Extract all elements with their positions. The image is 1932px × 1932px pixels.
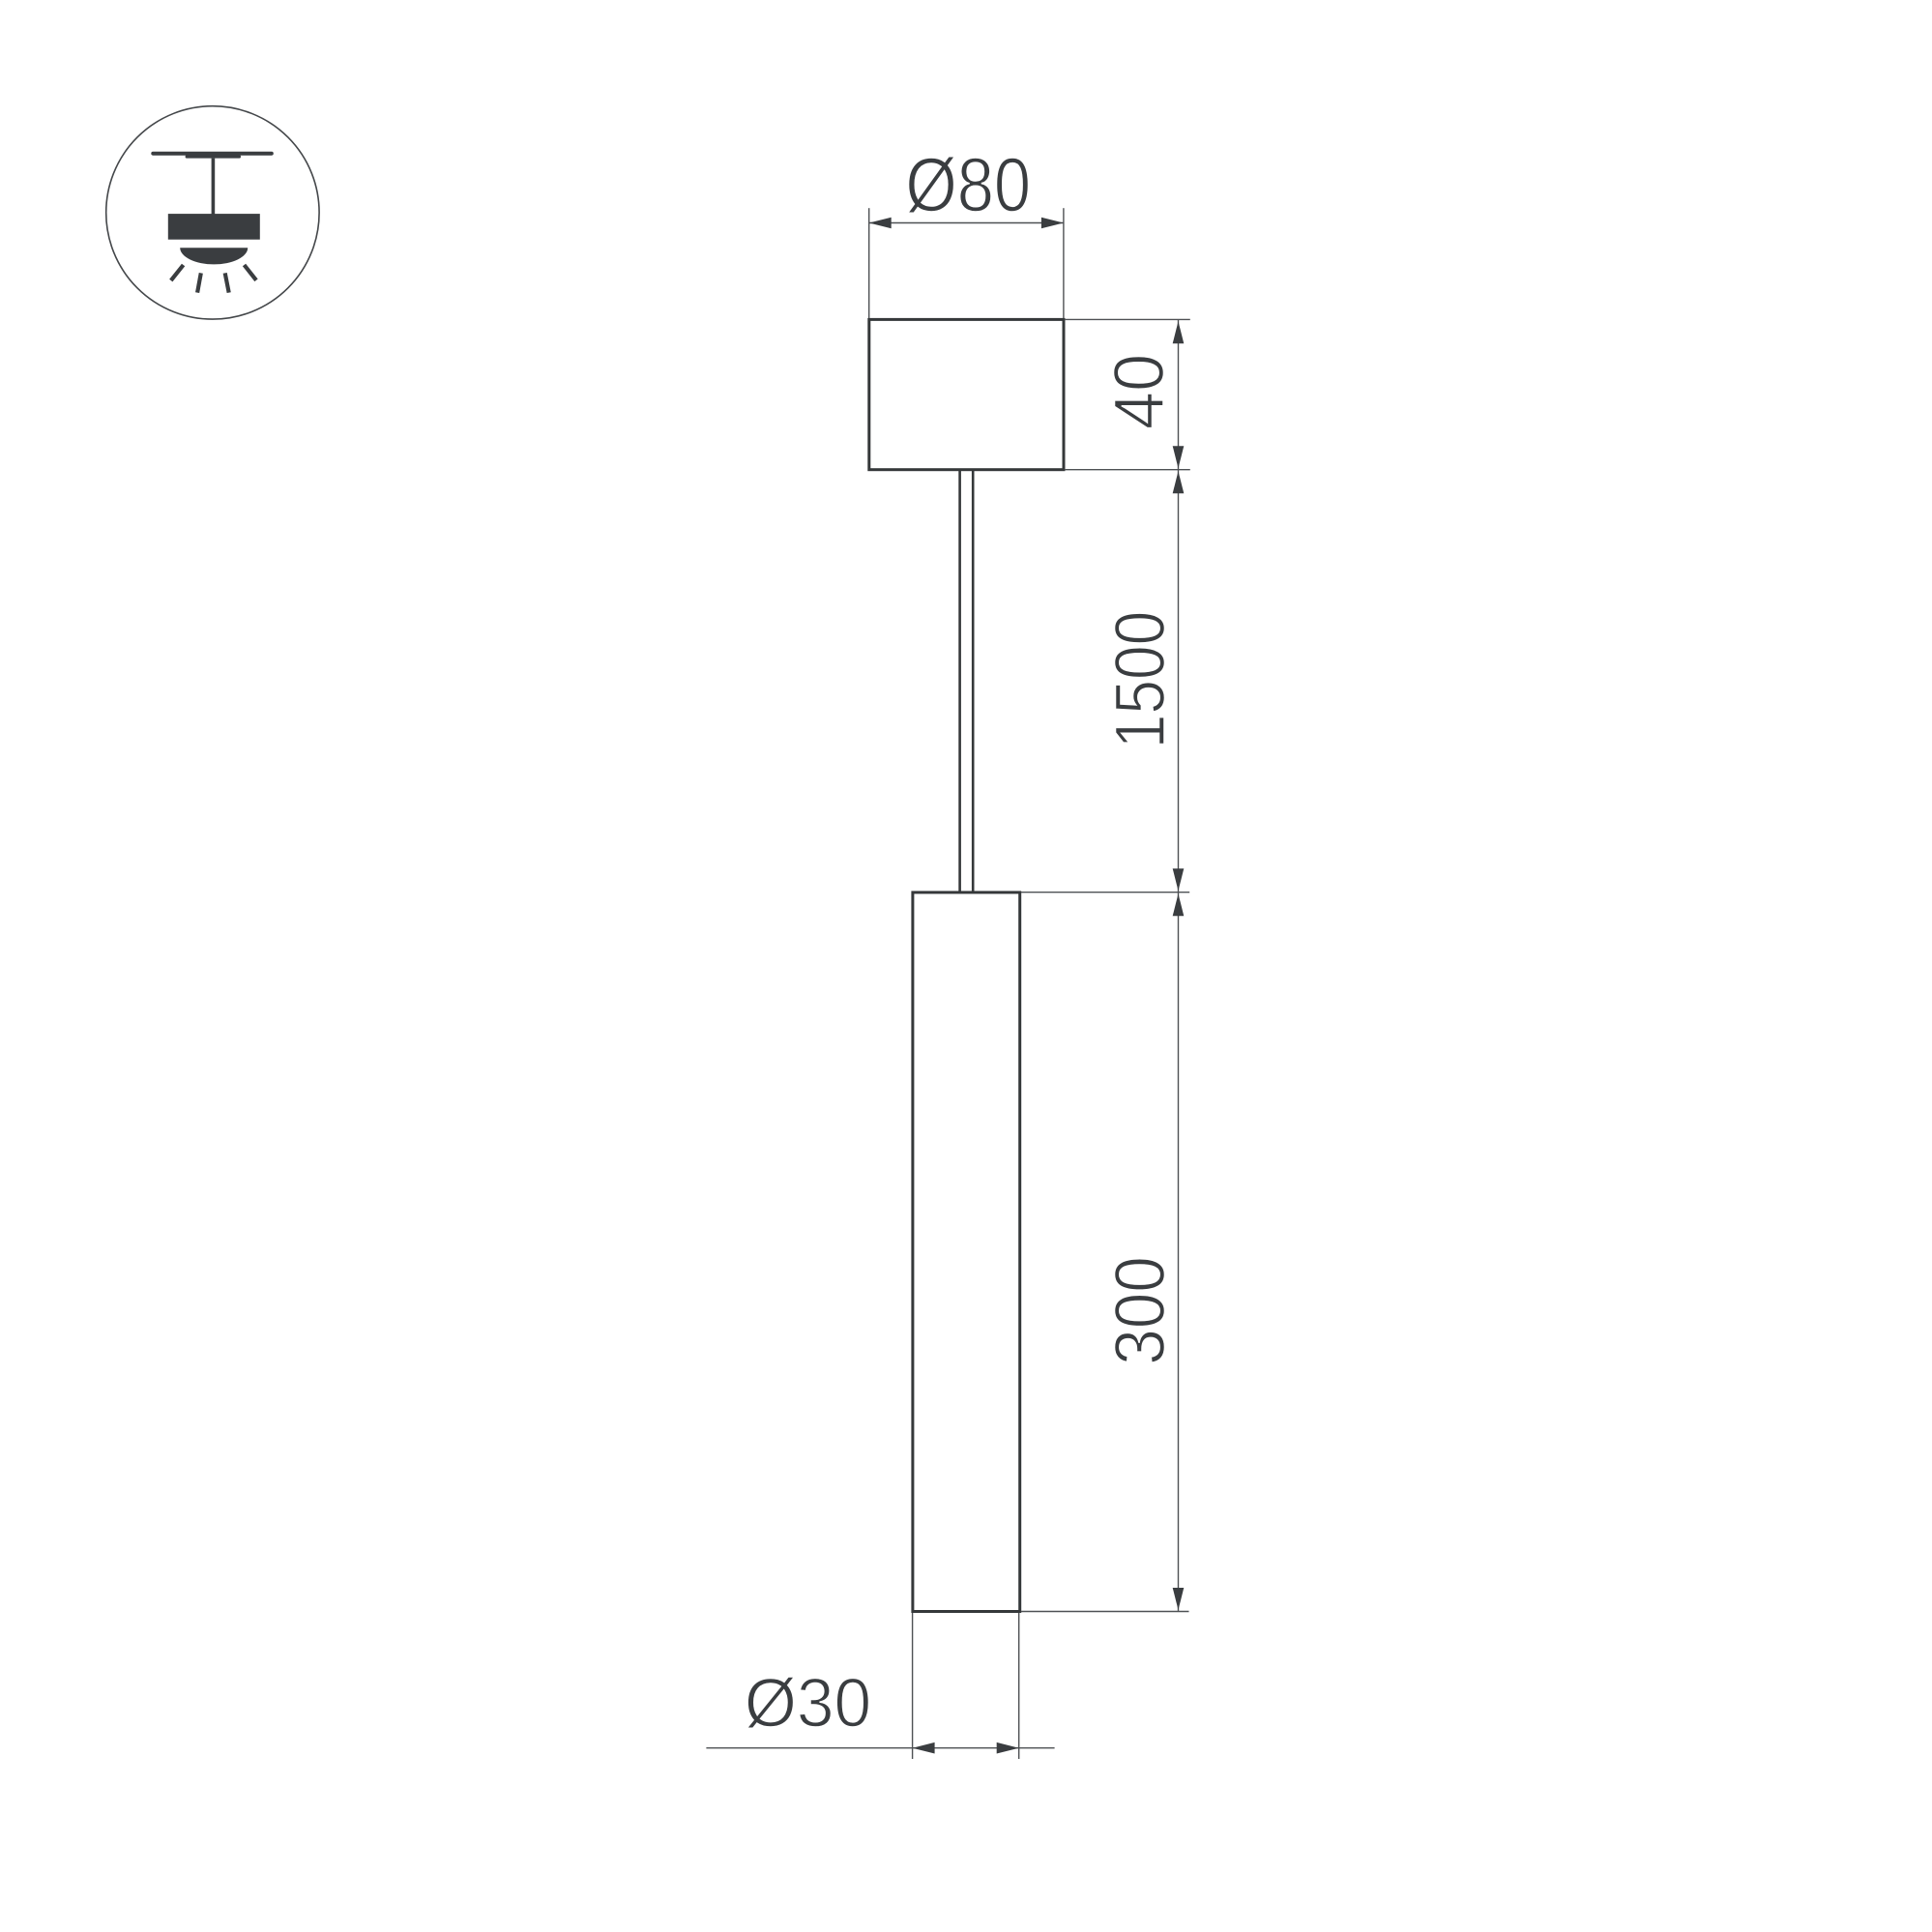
svg-text:Ø30: Ø30 <box>745 1664 871 1742</box>
svg-text:1500: 1500 <box>1100 611 1180 748</box>
svg-text:Ø80: Ø80 <box>905 141 1031 227</box>
svg-text:300: 300 <box>1100 1256 1180 1365</box>
svg-text:40: 40 <box>1100 354 1179 430</box>
